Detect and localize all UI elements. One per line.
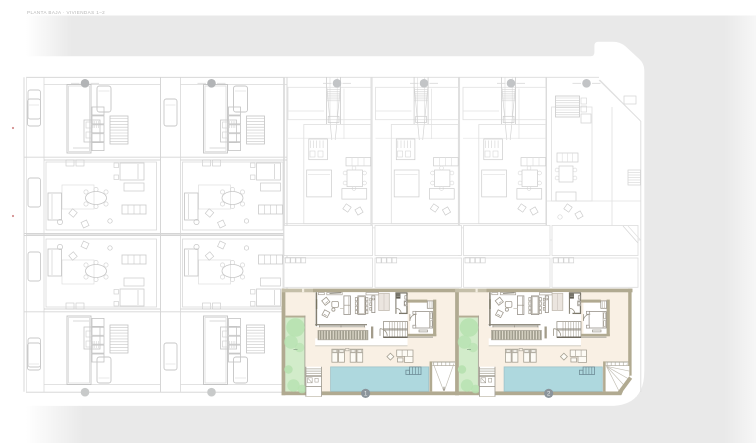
svg-text:2: 2 <box>547 391 551 398</box>
svg-text:1: 1 <box>364 391 368 398</box>
svg-text:PLANTA BAJA · VIVIENDAS 1–2: PLANTA BAJA · VIVIENDAS 1–2 <box>27 10 105 15</box>
